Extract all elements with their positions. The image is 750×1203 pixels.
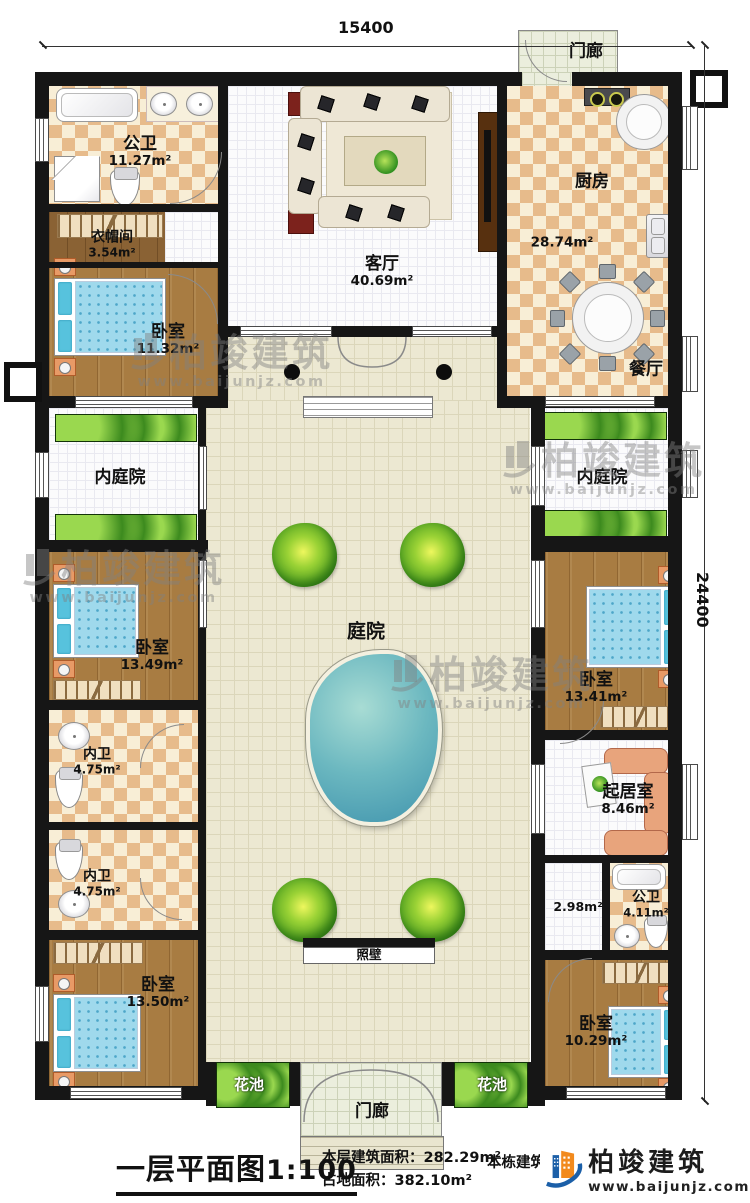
label-inner-court-right: 内庭院 bbox=[577, 468, 628, 487]
area-stats: 本层建筑面积：282.29m² 占地面积：382.10m² bbox=[322, 1147, 501, 1193]
brand-url: www.baijunjz.com bbox=[588, 1179, 750, 1195]
chair-icon bbox=[599, 356, 616, 371]
window bbox=[682, 336, 698, 392]
hall-floor bbox=[165, 212, 220, 268]
wall bbox=[206, 1062, 216, 1106]
sofa-icon bbox=[604, 748, 668, 774]
wall bbox=[531, 408, 545, 1086]
label-bed3: 卧室13.50m² bbox=[127, 976, 190, 1010]
wall bbox=[35, 72, 49, 1100]
wall bbox=[602, 863, 610, 950]
closet-icon bbox=[53, 680, 141, 700]
wall bbox=[545, 950, 668, 960]
tree-icon bbox=[400, 523, 465, 587]
label-flowerbox-left: 花池 bbox=[234, 1077, 264, 1094]
window bbox=[70, 1087, 182, 1099]
chair-icon bbox=[650, 310, 665, 327]
label-wc1: 内卫4.75m² bbox=[73, 747, 120, 776]
wall bbox=[35, 540, 208, 552]
bay-box bbox=[4, 362, 42, 402]
window bbox=[545, 396, 655, 407]
shower-icon bbox=[54, 156, 100, 202]
dim-top-value: 15400 bbox=[338, 18, 394, 37]
dim-tick bbox=[687, 41, 695, 49]
kitchen-sink-icon bbox=[646, 214, 670, 258]
wall bbox=[440, 1062, 454, 1106]
tree-icon bbox=[400, 878, 465, 942]
window bbox=[682, 450, 698, 498]
window bbox=[35, 986, 49, 1042]
label-bed2: 卧室13.49m² bbox=[121, 639, 184, 673]
sink-icon bbox=[614, 924, 640, 948]
plan-title: 一层平面图 bbox=[116, 1152, 266, 1186]
wall bbox=[526, 1062, 545, 1106]
nightstand-icon bbox=[53, 660, 75, 678]
brand-name: 柏竣建筑 bbox=[588, 1142, 750, 1179]
window bbox=[35, 452, 49, 498]
label-bed1: 卧室11.32m² bbox=[137, 323, 200, 357]
screen-wall-band bbox=[303, 938, 435, 947]
chair-icon bbox=[599, 264, 616, 279]
dining-table-icon bbox=[572, 282, 644, 354]
wall bbox=[537, 536, 668, 552]
label-bedR: 卧室13.41m² bbox=[565, 671, 628, 705]
wall bbox=[49, 930, 198, 940]
double-door-icon bbox=[336, 335, 408, 371]
sofa-icon bbox=[288, 118, 322, 214]
window bbox=[240, 326, 332, 337]
label-kitchen-area: 28.74m² bbox=[531, 235, 594, 250]
sofa-icon bbox=[300, 86, 450, 122]
wall bbox=[497, 86, 507, 408]
label-screen-wall: 照壁 bbox=[356, 948, 381, 962]
dim-tick bbox=[701, 1097, 709, 1105]
tree-icon bbox=[272, 878, 337, 942]
window bbox=[35, 118, 49, 162]
label-living: 客厅40.69m² bbox=[351, 255, 414, 289]
window bbox=[412, 326, 492, 337]
bathtub-icon bbox=[56, 88, 138, 122]
dim-right-value: 24400 bbox=[693, 572, 712, 628]
wall bbox=[49, 700, 198, 710]
bathtub-icon bbox=[612, 864, 666, 890]
wall bbox=[49, 262, 220, 268]
sink-icon bbox=[186, 92, 213, 116]
flowerbed-icon bbox=[540, 510, 667, 538]
window bbox=[682, 764, 698, 840]
wall bbox=[668, 72, 682, 1100]
label-bath-bottom: 公卫4.11m² bbox=[623, 891, 668, 920]
window bbox=[75, 396, 193, 408]
kitchen-table-icon bbox=[616, 94, 672, 150]
chair-icon bbox=[550, 310, 565, 327]
flowerbed-icon bbox=[55, 414, 197, 442]
label-courtyard: 庭院 bbox=[347, 621, 385, 642]
pond bbox=[306, 650, 442, 826]
flowerbed-icon bbox=[55, 514, 197, 542]
label-dining: 餐厅 bbox=[629, 360, 663, 379]
closet-icon bbox=[53, 942, 143, 964]
stat-label: 本层建筑面积： bbox=[322, 1150, 424, 1166]
window bbox=[566, 1087, 666, 1099]
wall bbox=[545, 855, 668, 863]
wall bbox=[35, 72, 682, 86]
nightstand-icon bbox=[53, 564, 75, 582]
plan-title-block: 一层平面图1:100 bbox=[116, 1146, 357, 1196]
dim-tick bbox=[701, 41, 709, 49]
sofa-icon bbox=[604, 830, 668, 856]
label-corridor-area: 2.98m² bbox=[553, 900, 602, 914]
dim-tick bbox=[39, 41, 47, 49]
side-door-box bbox=[690, 70, 728, 108]
dim-line-top bbox=[42, 46, 692, 47]
wall bbox=[218, 86, 228, 408]
label-kitchen: 厨房 bbox=[575, 172, 609, 191]
floor-plan: 公卫11.27m² 衣帽间3.54m² 卧室11.32m² 客厅40.69m² … bbox=[0, 0, 750, 1203]
brand-logo-icon bbox=[544, 1138, 584, 1198]
wall bbox=[49, 822, 198, 830]
stat-label: 占地面积： bbox=[322, 1173, 395, 1189]
label-sitting: 起居室8.46m² bbox=[601, 783, 654, 817]
column-icon bbox=[436, 364, 452, 380]
label-flowerbox-right: 花池 bbox=[477, 1077, 507, 1094]
stat-value: 382.10m² bbox=[395, 1173, 472, 1189]
patio-door bbox=[531, 764, 545, 834]
tv-icon bbox=[484, 130, 491, 222]
label-cloakroom: 衣帽间3.54m² bbox=[88, 230, 135, 259]
sink-icon bbox=[150, 92, 177, 116]
label-porch-bottom: 门廊 bbox=[355, 1102, 389, 1121]
brand-logo: 柏竣建筑 www.baijunjz.com bbox=[540, 1136, 750, 1200]
label-inner-court-left: 内庭院 bbox=[95, 468, 146, 487]
nightstand-icon bbox=[53, 974, 75, 992]
wall bbox=[49, 204, 220, 212]
plant-icon bbox=[374, 150, 398, 174]
steps bbox=[303, 396, 433, 418]
tree-icon bbox=[272, 523, 337, 587]
column-icon bbox=[284, 364, 300, 380]
window bbox=[199, 560, 207, 628]
window bbox=[531, 560, 545, 628]
window bbox=[531, 446, 545, 506]
nightstand-icon bbox=[54, 358, 76, 376]
window bbox=[682, 106, 698, 170]
label-wc2: 内卫4.75m² bbox=[73, 869, 120, 898]
flowerbed-icon bbox=[540, 412, 667, 440]
label-bed4: 卧室10.29m² bbox=[565, 1015, 628, 1049]
label-bath-top: 公卫11.27m² bbox=[109, 135, 172, 169]
sofa-icon bbox=[318, 196, 430, 228]
window bbox=[199, 446, 207, 510]
